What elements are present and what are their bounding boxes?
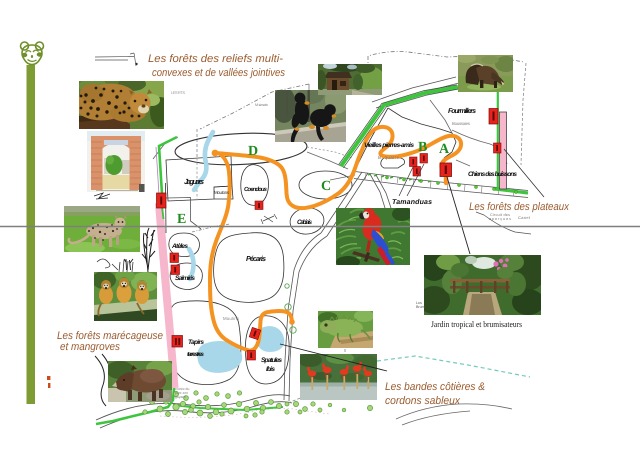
svg-text:Les forêts des reliefs multi-: Les forêts des reliefs multi- xyxy=(148,53,283,65)
svg-text:et mangroves: et mangroves xyxy=(60,341,120,353)
svg-text:Moulins: Moulins xyxy=(223,316,240,321)
svg-text:Jaguars: Jaguars xyxy=(184,177,204,186)
svg-text:LES RTS: LES RTS xyxy=(171,90,185,95)
svg-text:Les forêts des plateaux: Les forêts des plateaux xyxy=(469,201,569,213)
svg-text:Vieilles pierres-amis: Vieilles pierres-amis xyxy=(364,142,414,149)
svg-text:Les bandes côtières &: Les bandes côtières & xyxy=(385,381,485,393)
svg-text:Saïmiris: Saïmiris xyxy=(175,275,195,282)
svg-text:E: E xyxy=(177,212,186,227)
svg-text:B. quatre: B. quatre xyxy=(378,155,399,160)
svg-text:D: D xyxy=(248,144,258,159)
svg-text:Cabiais: Cabiais xyxy=(297,219,312,226)
svg-text:B: B xyxy=(418,140,427,155)
svg-text:Ibis: Ibis xyxy=(266,366,275,373)
svg-text:Fourmiliers: Fourmiliers xyxy=(448,107,476,115)
svg-text:Brum.: Brum. xyxy=(416,305,426,309)
svg-text:cordons sableux: cordons sableux xyxy=(385,395,460,407)
svg-text:Coendous: Coendous xyxy=(244,186,268,193)
svg-text:Pécaris: Pécaris xyxy=(246,254,266,263)
svg-text:Jardin tropical et brumisateur: Jardin tropical et brumisateurs xyxy=(431,319,523,329)
svg-text:Tamanduas: Tamanduas xyxy=(392,198,432,206)
svg-text:guyane: guyane xyxy=(175,395,186,399)
svg-text:M. tamarin: M. tamarin xyxy=(255,103,268,107)
svg-text:Tapirs: Tapirs xyxy=(188,339,204,346)
svg-text:Chiens des buissons: Chiens des buissons xyxy=(468,171,517,178)
svg-text:C: C xyxy=(321,179,331,194)
svg-text:Canet: Canet xyxy=(518,215,531,220)
svg-text:Boussaies: Boussaies xyxy=(452,121,471,126)
svg-text:aperçues: aperçues xyxy=(489,217,511,221)
svg-text:terrestres: terrestres xyxy=(187,351,205,358)
svg-text:A: A xyxy=(439,142,450,157)
svg-text:Spatules: Spatules xyxy=(261,357,282,364)
svg-text:convexes et de vallées jointiv: convexes et de vallées jointives xyxy=(152,67,285,79)
svg-text:Moutons: Moutons xyxy=(214,190,230,195)
svg-text:Atèles: Atèles xyxy=(171,243,188,250)
